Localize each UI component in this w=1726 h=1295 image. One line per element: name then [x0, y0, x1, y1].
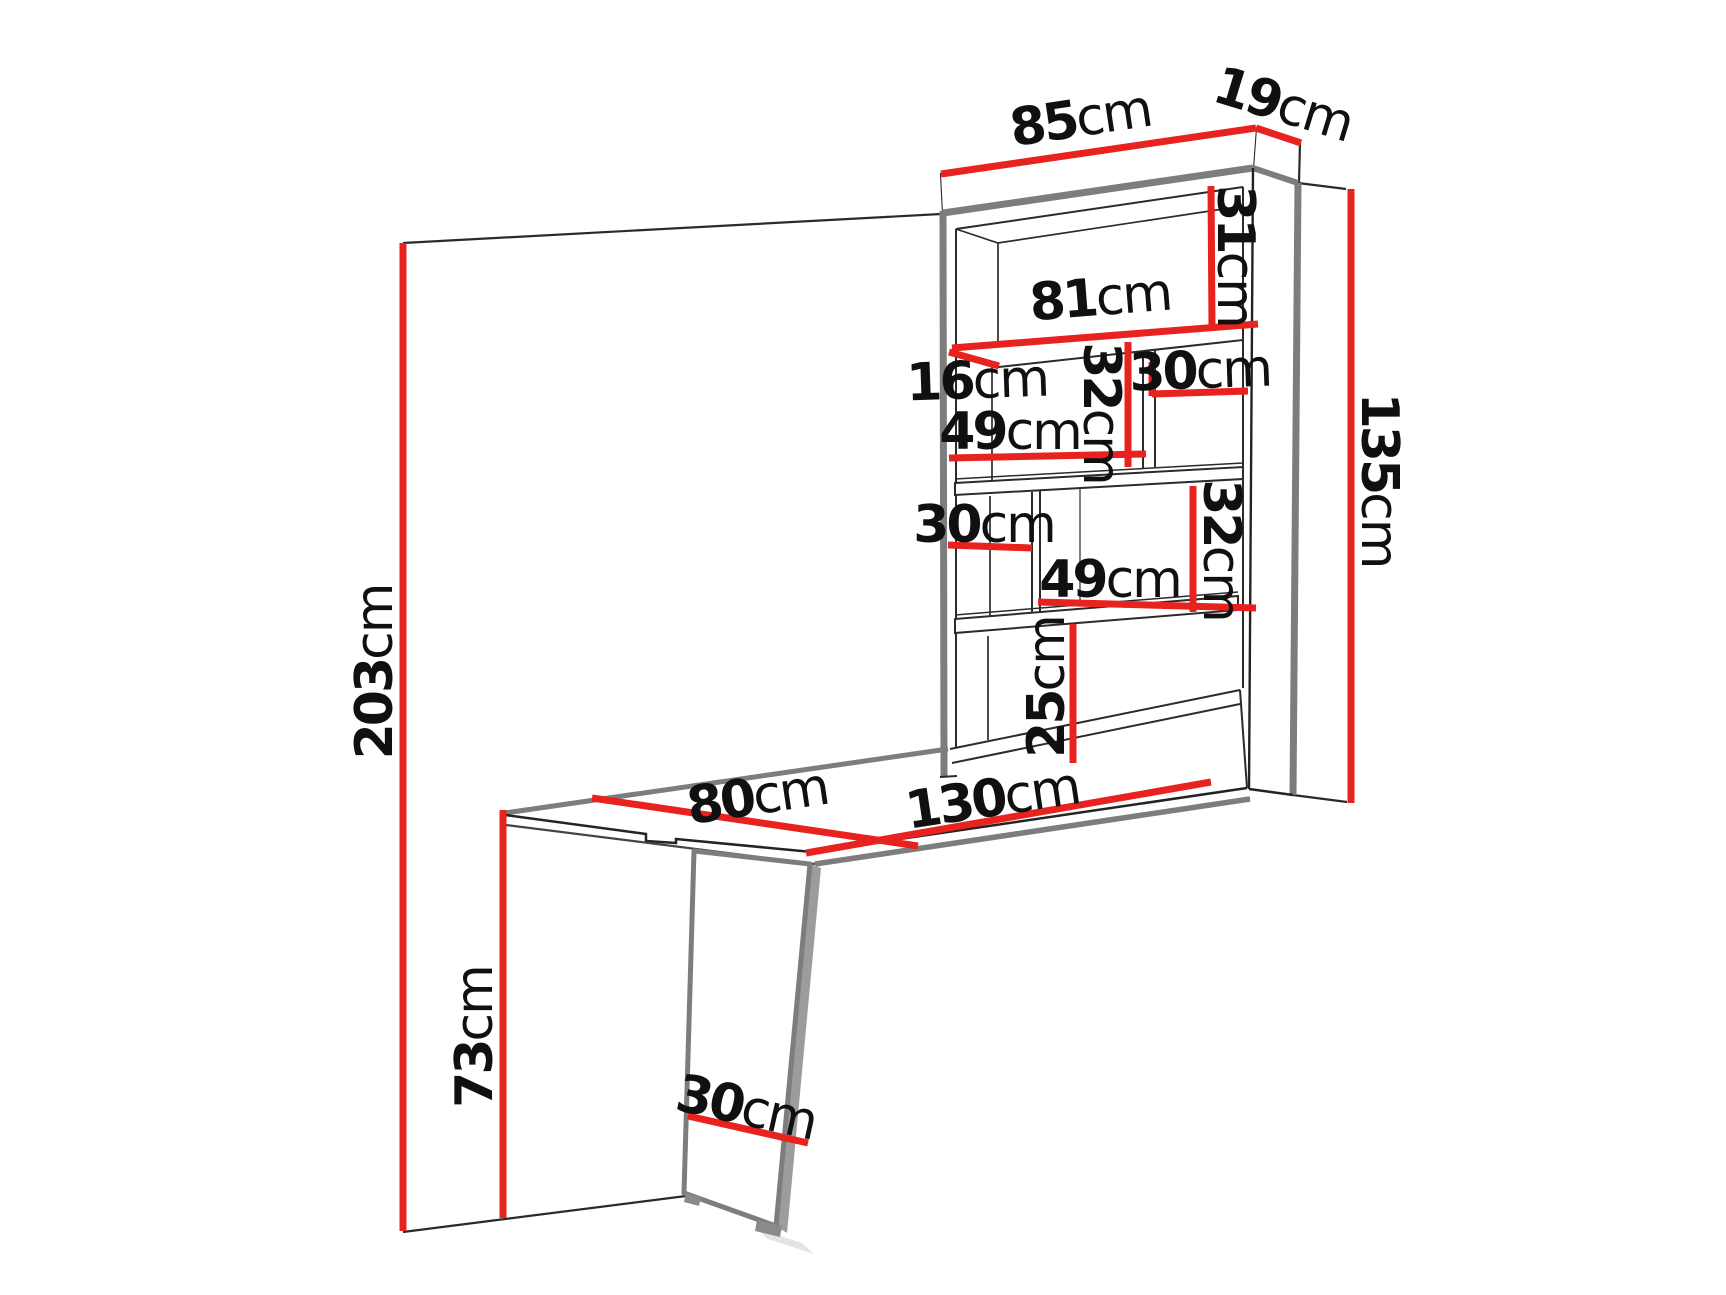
dim-label-49cm-lower: 49cm: [1039, 550, 1181, 610]
cabinet-left-stile: [943, 211, 944, 777]
furniture-dimension-diagram: 85cm 19cm 31cm 81cm 16cm 30cm 49cm 32cm …: [0, 0, 1726, 1295]
ext-line-depth: [1299, 143, 1300, 182]
dim-label-49cm-upper: 49cm: [939, 402, 1081, 462]
desk-top-surface: [505, 690, 1247, 852]
support-leg: [684, 851, 821, 1254]
dim-label-203cm: 203cm: [345, 585, 405, 760]
wall-top-line: [403, 214, 941, 243]
dim-label-25cm: 25cm: [1017, 616, 1077, 758]
diagram-canvas: 85cm 19cm 31cm 81cm 16cm 30cm 49cm 32cm …: [0, 0, 1726, 1295]
dim-label-73cm: 73cm: [445, 966, 505, 1108]
dim-label-81cm: 81cm: [1027, 263, 1173, 334]
cabinet-back-right-edge: [1293, 183, 1298, 795]
dim-label-30cm-middle: 30cm: [913, 495, 1055, 555]
dim-label-30cm-upper: 30cm: [1128, 339, 1272, 404]
dim-label-32cm-upper: 32cm: [1071, 342, 1131, 484]
ext-line-height-top: [1298, 183, 1346, 189]
dim-label-135cm: 135cm: [1349, 393, 1409, 568]
floor-line: [403, 1196, 686, 1232]
dim-label-32cm-lower: 32cm: [1191, 479, 1251, 621]
dim-label-31cm: 31cm: [1205, 185, 1265, 327]
ext-line-height-bottom: [1293, 795, 1347, 802]
dimension-labels: 85cm 19cm 31cm 81cm 16cm 30cm 49cm 32cm …: [345, 55, 1409, 1152]
